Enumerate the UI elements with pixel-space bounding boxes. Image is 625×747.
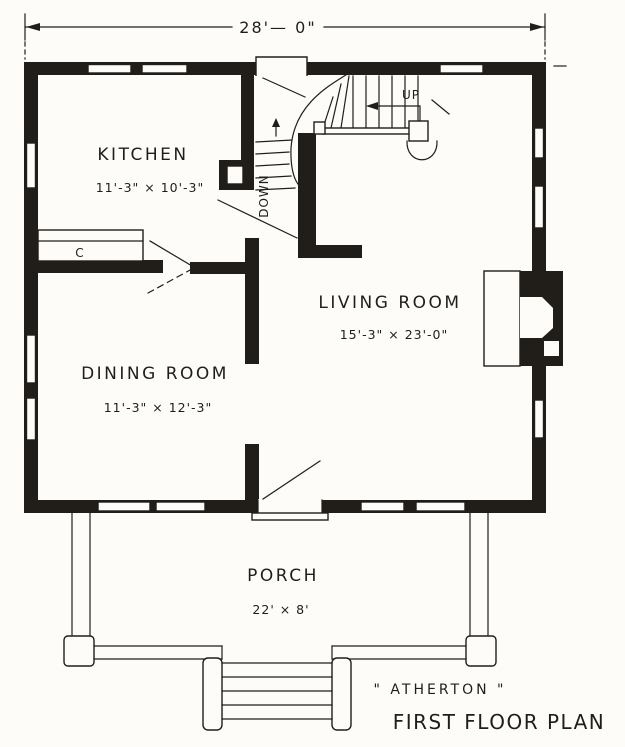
counter-label: C	[75, 246, 84, 260]
kitchen-name: KITCHEN	[97, 145, 188, 165]
stair-newel-small	[314, 122, 325, 134]
front-door-threshold	[252, 513, 328, 520]
window-north-1	[88, 65, 131, 74]
kitchen-dining-wall-stub	[190, 262, 245, 274]
dining-living-wall-upper	[245, 238, 259, 364]
stair-rail-volute	[407, 141, 437, 160]
room-labels: KITCHEN 11'-3" × 10'-3" LIVING ROOM 15'-…	[81, 145, 462, 617]
kitchen-size: 11'-3" × 10'-3"	[96, 180, 205, 195]
kitchen-counter: C	[38, 230, 143, 261]
up-arrow-head	[366, 102, 378, 110]
window-south-3	[361, 502, 404, 511]
window-south-1	[98, 502, 150, 511]
front-door-swing	[263, 461, 320, 499]
floor-plan-sheet: 28'— 0"	[0, 0, 625, 747]
porch-size: 22' × 8'	[252, 602, 309, 617]
floor-plan-drawing: 28'— 0"	[0, 0, 625, 747]
dining-room-size: 11'-3" × 12'-3"	[104, 400, 213, 415]
fireplace	[484, 271, 563, 366]
window-east-1	[535, 128, 544, 158]
dining-room-name: DINING ROOM	[81, 364, 229, 384]
wall-west	[24, 62, 38, 513]
porch-steps	[203, 658, 351, 730]
living-entry-wall-stub	[316, 245, 362, 258]
counter-outline	[38, 230, 143, 261]
porch-post-west	[64, 636, 94, 666]
stair-rail	[322, 128, 410, 134]
interior-walls	[38, 75, 362, 500]
dining-living-wall-lower	[245, 444, 259, 500]
stair-down-flight: DOWN	[256, 118, 295, 218]
kitchen-dining-wall	[38, 260, 163, 273]
basement-tread	[256, 164, 289, 166]
step-stringer-right	[332, 658, 351, 730]
up-arrow-tick	[432, 100, 449, 114]
dimension-arrow-right	[530, 23, 544, 31]
title-block: " ATHERTON " FIRST FLOOR PLAN	[374, 682, 606, 734]
window-east-2	[535, 186, 544, 228]
window-north-2	[142, 65, 187, 74]
window-west-dining-1	[27, 335, 36, 383]
windows	[27, 65, 544, 512]
stair-up-flight	[323, 76, 418, 128]
house-name-label: " ATHERTON "	[374, 682, 507, 698]
window-south-2	[156, 502, 205, 511]
window-north-3	[440, 65, 483, 74]
step-stringer-left	[203, 658, 222, 730]
overall-width-label: 28'— 0"	[239, 18, 316, 37]
kitchen-flue-hole	[227, 166, 243, 184]
plan-title-label: FIRST FLOOR PLAN	[393, 710, 606, 734]
fireplace-flue-hole	[544, 341, 559, 356]
porch-name: PORCH	[247, 566, 319, 586]
stair-down-label: DOWN	[257, 174, 271, 218]
stair-winder-tread	[331, 84, 341, 128]
stair-up-label: UP	[402, 88, 420, 102]
down-arrow-head	[272, 118, 280, 127]
firebox-opening	[520, 297, 553, 338]
stair-newel-post	[409, 121, 428, 141]
window-south-4	[416, 502, 465, 511]
rear-door-swing	[263, 78, 305, 97]
living-room-size: 15'-3" × 23'-0"	[340, 327, 449, 342]
fireplace-hearth	[484, 271, 520, 366]
window-west-kitchen	[27, 143, 36, 188]
staircase: UP DOWN	[256, 73, 449, 218]
living-room-name: LIVING ROOM	[318, 293, 461, 313]
dimension-arrow-left	[26, 23, 40, 31]
basement-tread	[256, 140, 292, 142]
rear-vestibule	[256, 57, 307, 97]
stair-winder-tread	[341, 76, 349, 128]
front-door	[252, 461, 328, 520]
basement-tread	[256, 152, 289, 154]
front-door-opening	[258, 499, 322, 514]
exterior-walls	[24, 62, 546, 513]
window-east-3	[535, 400, 544, 438]
vestibule-outline	[256, 57, 307, 76]
porch-post-east	[466, 636, 496, 666]
window-west-dining-2	[27, 398, 36, 440]
